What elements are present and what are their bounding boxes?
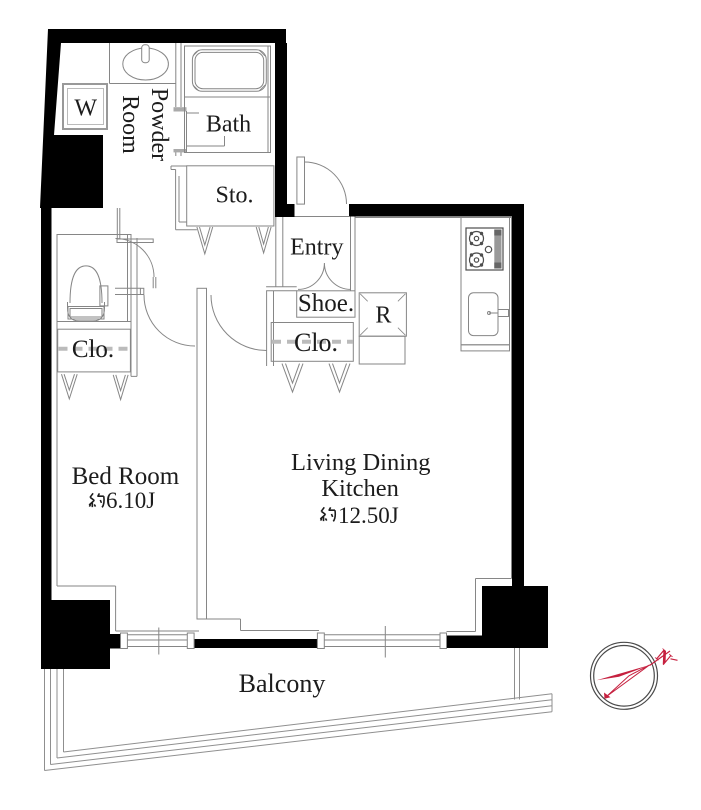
svg-text:N: N xyxy=(651,645,675,670)
